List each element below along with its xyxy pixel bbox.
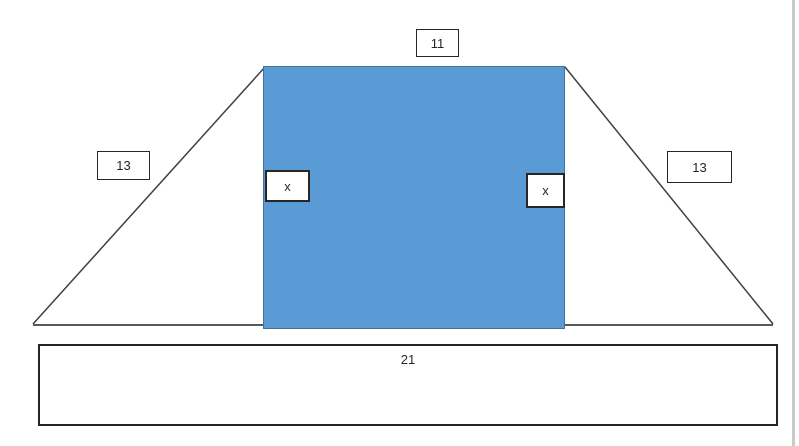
dimension-label-left-slant: 13 <box>97 151 150 180</box>
dimension-label-right-slant: 13 <box>667 151 732 183</box>
dimension-label-top: 11 <box>416 29 459 57</box>
dimension-label-left-slant-text: 13 <box>116 158 130 173</box>
dimension-label-right-slant-text: 13 <box>692 160 706 175</box>
dimension-label-top-text: 11 <box>431 36 445 51</box>
dimension-label-left-height-text: x <box>284 179 291 194</box>
dimension-label-right-height: x <box>526 173 565 208</box>
trapezoid-left-slant-line <box>33 67 265 324</box>
dimension-label-base-text: 21 <box>401 352 415 367</box>
base-measure-bar: 21 <box>38 344 778 426</box>
dimension-label-left-height: x <box>265 170 310 202</box>
trapezoid-right-slant-line <box>565 67 773 324</box>
page-edge-line <box>792 0 795 446</box>
dimension-label-right-height-text: x <box>542 183 549 198</box>
diagram-canvas: 11 13 13 x x 21 <box>0 0 799 446</box>
